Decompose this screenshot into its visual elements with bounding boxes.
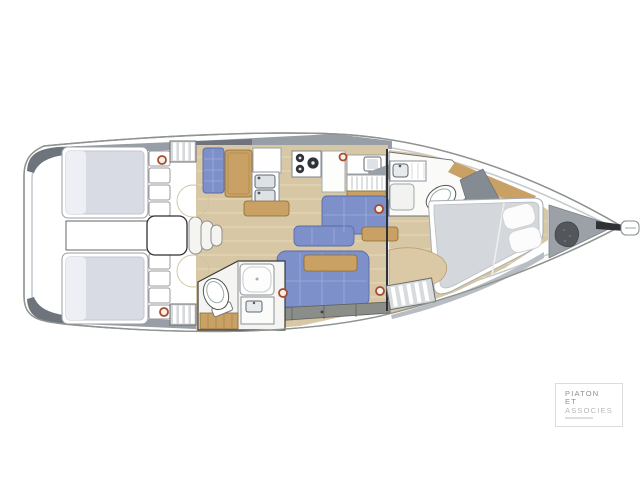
- porthole: [158, 156, 166, 164]
- porthole: [376, 287, 384, 295]
- nav-seat: [203, 148, 224, 193]
- engine-box: [147, 216, 187, 255]
- port-table: [304, 255, 357, 271]
- sailboat-floorplan-drawing: [0, 0, 640, 480]
- galley-island-table: [244, 201, 289, 216]
- hanging-locker-top: [170, 141, 196, 162]
- boat-layout-plan: PIATON ET ASSOCIES: [0, 0, 640, 480]
- porthole: [160, 308, 168, 316]
- corridor: [66, 221, 150, 250]
- starboard-table: [362, 227, 398, 241]
- anchor-chain: [555, 222, 579, 247]
- aft-bed-pillow: [66, 151, 86, 214]
- companionway-step-1: [189, 217, 202, 254]
- galley-sink-2: [255, 190, 275, 202]
- galley-sink-1: [255, 175, 275, 188]
- galley-counter: [253, 148, 281, 173]
- designer-logo: PIATON ET ASSOCIES: [555, 383, 623, 427]
- dish-drainer: [347, 175, 386, 191]
- logo-subline: [565, 417, 593, 419]
- porthole: [279, 289, 287, 297]
- companionway-step-3: [211, 225, 222, 246]
- shower-seat: [390, 184, 414, 210]
- shower-drain: [256, 278, 259, 281]
- porthole: [375, 205, 383, 213]
- aft-cabin-starboard: [62, 147, 170, 218]
- faucet: [253, 302, 255, 304]
- faucet: [258, 177, 261, 180]
- galley-sink-3-basin: [367, 159, 378, 169]
- chart-table: [225, 150, 252, 197]
- faucet: [399, 165, 402, 168]
- faucet: [258, 192, 261, 195]
- aft-cabin-port: [62, 253, 170, 324]
- porthole: [340, 154, 347, 161]
- aft-bed-pillow: [66, 257, 86, 320]
- hanging-locker-bottom: [170, 304, 196, 325]
- drawer-knob: [321, 311, 324, 314]
- nav-station: [203, 148, 252, 197]
- logo-line-3: ASSOCIES: [565, 407, 622, 415]
